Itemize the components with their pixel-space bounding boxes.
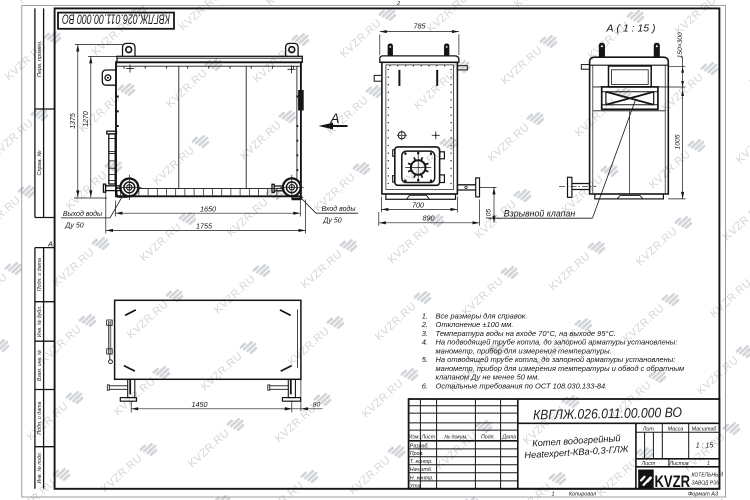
svg-text:Разраб.: Разраб. [410, 443, 429, 449]
svg-text:5.: 5. [422, 355, 428, 364]
svg-text:№ докум.: № докум. [444, 435, 467, 441]
svg-text:1005: 1005 [674, 134, 681, 149]
svg-text:ЗАВОД РЭУ: ЗАВОД РЭУ [692, 481, 721, 487]
svg-text:700: 700 [412, 200, 424, 209]
svg-text:150×300: 150×300 [677, 32, 684, 58]
svg-text:Справ. №: Справ. № [37, 150, 43, 175]
svg-text:6.: 6. [422, 381, 428, 390]
svg-text:80: 80 [313, 402, 321, 409]
svg-text:Т. контр.: Т. контр. [410, 459, 433, 465]
svg-text:Утв.: Утв. [410, 483, 422, 489]
svg-text:На подводящей трубе котла, до: На подводящей трубе котла, до запорной а… [436, 338, 678, 347]
svg-text:Формат А3: Формат А3 [688, 492, 719, 498]
svg-text:KVZR: KVZR [655, 472, 691, 491]
svg-text:Листов: Листов [668, 461, 689, 467]
svg-text:Копировал: Копировал [569, 492, 596, 498]
svg-text:Инв. № дубл.: Инв. № дубл. [37, 306, 43, 337]
svg-text:манометр, прибор для измерения: манометр, прибор для измерения температу… [436, 364, 685, 373]
svg-text:Перв. примен.: Перв. примен. [37, 40, 43, 77]
svg-text:3.: 3. [422, 329, 428, 338]
svg-text:1.: 1. [422, 311, 428, 320]
svg-text:2: 2 [396, 1, 400, 7]
svg-text:Отклонение ±100 мм.: Отклонение ±100 мм. [436, 320, 514, 329]
svg-text:1450: 1450 [192, 400, 208, 409]
svg-text:2.: 2. [421, 320, 428, 329]
svg-text:Дата: Дата [501, 435, 516, 441]
svg-text:Нач.отд.: Нач.отд. [410, 467, 432, 473]
svg-text:Инв. № подл.: Инв. № подл. [37, 452, 43, 484]
svg-text:На отводящей трубе котла, до з: На отводящей трубе котла, до запорной ар… [436, 355, 676, 364]
svg-text:Пров.: Пров. [410, 451, 424, 457]
svg-text:Все размеры для справок.: Все размеры для справок. [436, 311, 528, 320]
svg-text:Температура воды на входе 70°С: Температура воды на входе 70°С, на выход… [436, 329, 616, 338]
svg-text:1755: 1755 [196, 222, 213, 231]
svg-text:Лист: Лист [641, 461, 656, 467]
svg-text:Изм.: Изм. [409, 435, 420, 441]
svg-text:Лит.: Лит. [642, 427, 655, 433]
svg-text:Взам. инв. №: Взам. инв. № [37, 349, 43, 381]
svg-text:А: А [329, 111, 339, 126]
svg-text:Подп. и дата: Подп. и дата [37, 401, 43, 434]
svg-text:1: 1 [707, 461, 710, 467]
svg-text:А ( 1 : 15 ): А ( 1 : 15 ) [605, 23, 655, 35]
svg-text:клапаном Ду не менее 50 мм.: клапаном Ду не менее 50 мм. [436, 373, 540, 382]
svg-text:Подп.: Подп. [481, 435, 495, 441]
svg-text:1: 1 [551, 492, 554, 498]
svg-text:манометр, прибор для измерения: манометр, прибор для измерения температу… [436, 346, 612, 355]
svg-text:1 : 15: 1 : 15 [696, 443, 714, 450]
svg-text:4.: 4. [422, 338, 428, 347]
svg-text:890: 890 [423, 214, 435, 223]
svg-text:КВГЛЖ.026.011.00.000 ВО: КВГЛЖ.026.011.00.000 ВО [533, 405, 682, 423]
svg-text:Масштаб: Масштаб [692, 427, 718, 433]
svg-text:Ду 50: Ду 50 [322, 218, 341, 225]
svg-text:Остальные требования по ОСТ 10: Остальные требования по ОСТ 108.030.133-… [436, 381, 608, 390]
svg-text:Ду 50: Ду 50 [64, 222, 83, 229]
svg-text:Вход воды: Вход воды [322, 205, 357, 213]
svg-text:Выход воды: Выход воды [63, 210, 103, 218]
svg-text:Взрывной клапан: Взрывной клапан [504, 208, 576, 218]
svg-text:Подп. и дата: Подп. и дата [37, 258, 43, 291]
svg-text:Н. контр.: Н. контр. [410, 475, 434, 481]
svg-text:Лист: Лист [420, 435, 435, 441]
svg-text:1375: 1375 [70, 113, 77, 129]
svg-text:1270: 1270 [83, 111, 90, 127]
svg-text:КОТЕЛЬНЫЙ: КОТЕЛЬНЫЙ [692, 471, 724, 479]
svg-text:КВГЛЖ.026.011.00.000 ВО: КВГЛЖ.026.011.00.000 ВО [62, 12, 170, 27]
svg-text:1650: 1650 [200, 205, 216, 214]
svg-text:785: 785 [414, 22, 427, 31]
svg-text:Масса: Масса [668, 427, 684, 433]
